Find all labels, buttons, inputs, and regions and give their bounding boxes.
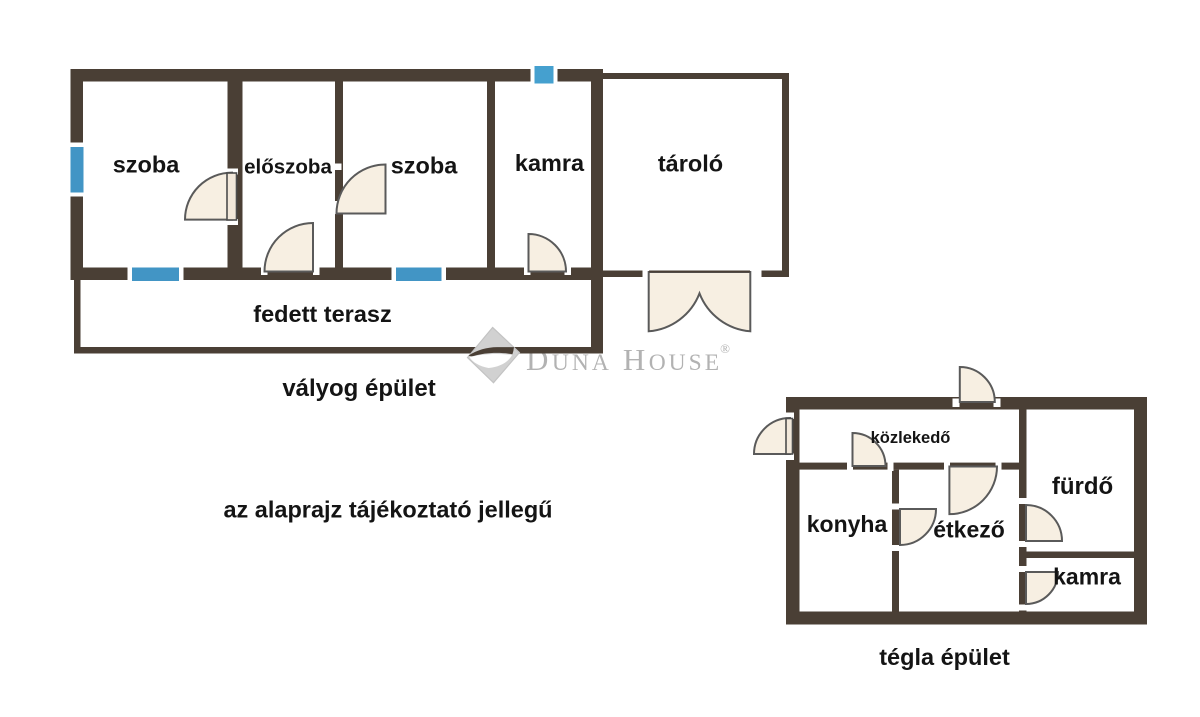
svg-text:tégla épület: tégla épület <box>879 644 1010 670</box>
svg-text:konyha: konyha <box>807 511 888 537</box>
svg-text:fürdő: fürdő <box>1052 473 1113 500</box>
svg-text:szoba: szoba <box>391 153 459 179</box>
svg-text:fedett terasz: fedett terasz <box>253 301 391 327</box>
svg-text:az alaprajz tájékoztató jelleg: az alaprajz tájékoztató jellegű <box>223 497 552 523</box>
svg-text:kamra: kamra <box>1053 564 1121 590</box>
svg-text:étkező: étkező <box>933 517 1005 543</box>
svg-text:tároló: tároló <box>658 151 723 177</box>
svg-text:közlekedő: közlekedő <box>871 429 951 447</box>
svg-text:szoba: szoba <box>113 152 181 178</box>
svg-text:előszoba: előszoba <box>244 156 332 179</box>
svg-text:kamra: kamra <box>515 150 585 176</box>
svg-text:vályog épület: vályog épület <box>282 375 435 402</box>
